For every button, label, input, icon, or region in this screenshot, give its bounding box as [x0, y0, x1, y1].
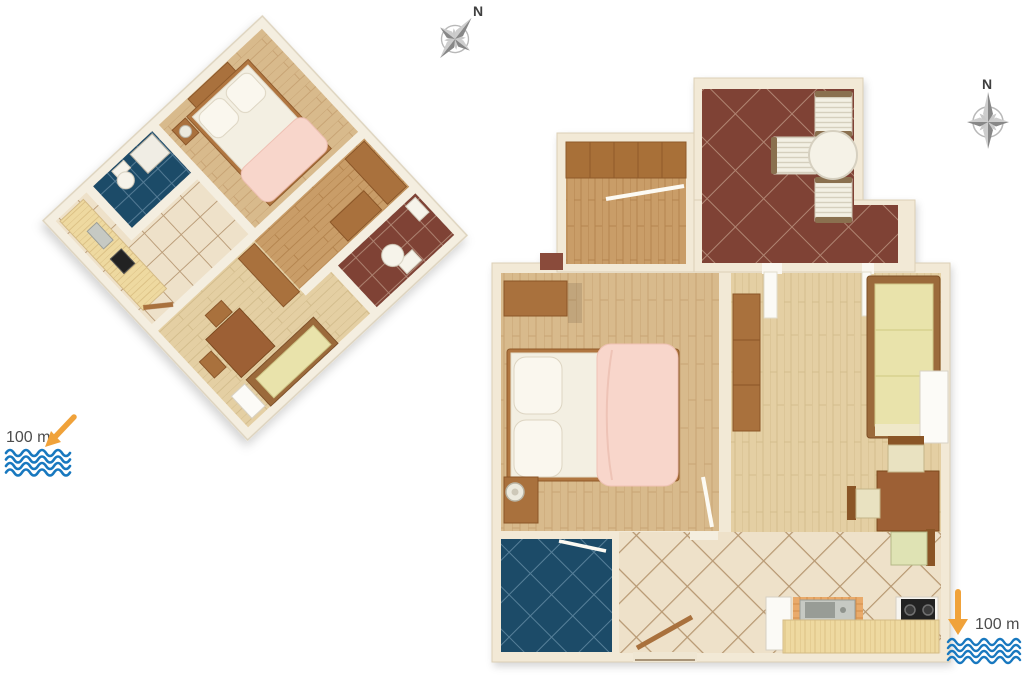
side-panel: [920, 371, 948, 443]
wardrobe: [504, 281, 567, 316]
sea-waves-icon: [6, 450, 70, 476]
plan-3d-apartment: [43, 16, 467, 440]
bed-pillow: [514, 357, 562, 414]
terrace-chair: [815, 177, 852, 223]
floor-plan-canvas: N N 100 m: [0, 0, 1024, 683]
sink-basin: [805, 602, 835, 618]
terrace-table: [809, 131, 857, 179]
bed-pillow: [514, 420, 562, 477]
burner: [905, 605, 915, 615]
door-leaf: [764, 272, 777, 318]
sea-marker-bottom-right: 100 m: [948, 592, 1020, 663]
bathroom-floor: [501, 539, 612, 652]
sea-waves-icon: [948, 639, 1020, 663]
sea-marker-bottom-left: 100 m: [6, 417, 74, 476]
compass-north-label: N: [982, 76, 992, 92]
distance-label: 100 m: [975, 616, 1019, 633]
dining-table: [877, 471, 939, 531]
floor-plan-image: N N 100 m: [0, 0, 1024, 683]
compass-left: N: [425, 3, 486, 70]
terrace-floor: [702, 89, 898, 263]
entry-floor: [566, 178, 686, 264]
doormat: [540, 253, 563, 270]
wardrobe-shadow: [568, 283, 582, 323]
burner: [923, 605, 933, 615]
arrow-down-icon: [948, 592, 968, 635]
dining-chair: [847, 486, 880, 520]
kitchen-chair: [891, 529, 935, 566]
dresser: [733, 294, 760, 431]
door-opening: [690, 531, 718, 540]
faucet: [840, 607, 846, 613]
distance-label: 100 m: [6, 429, 50, 446]
compass-right: N: [967, 76, 1009, 149]
compass-rose-icon: [967, 92, 1009, 149]
kitchen-bar-counter: [783, 620, 939, 653]
entry-closet: [566, 142, 686, 178]
plan-2d-apartment: [492, 78, 950, 662]
nightstand: [504, 477, 538, 523]
dining-chair: [888, 436, 924, 472]
compass-north-label: N: [473, 3, 483, 19]
lamp-center: [512, 489, 519, 496]
